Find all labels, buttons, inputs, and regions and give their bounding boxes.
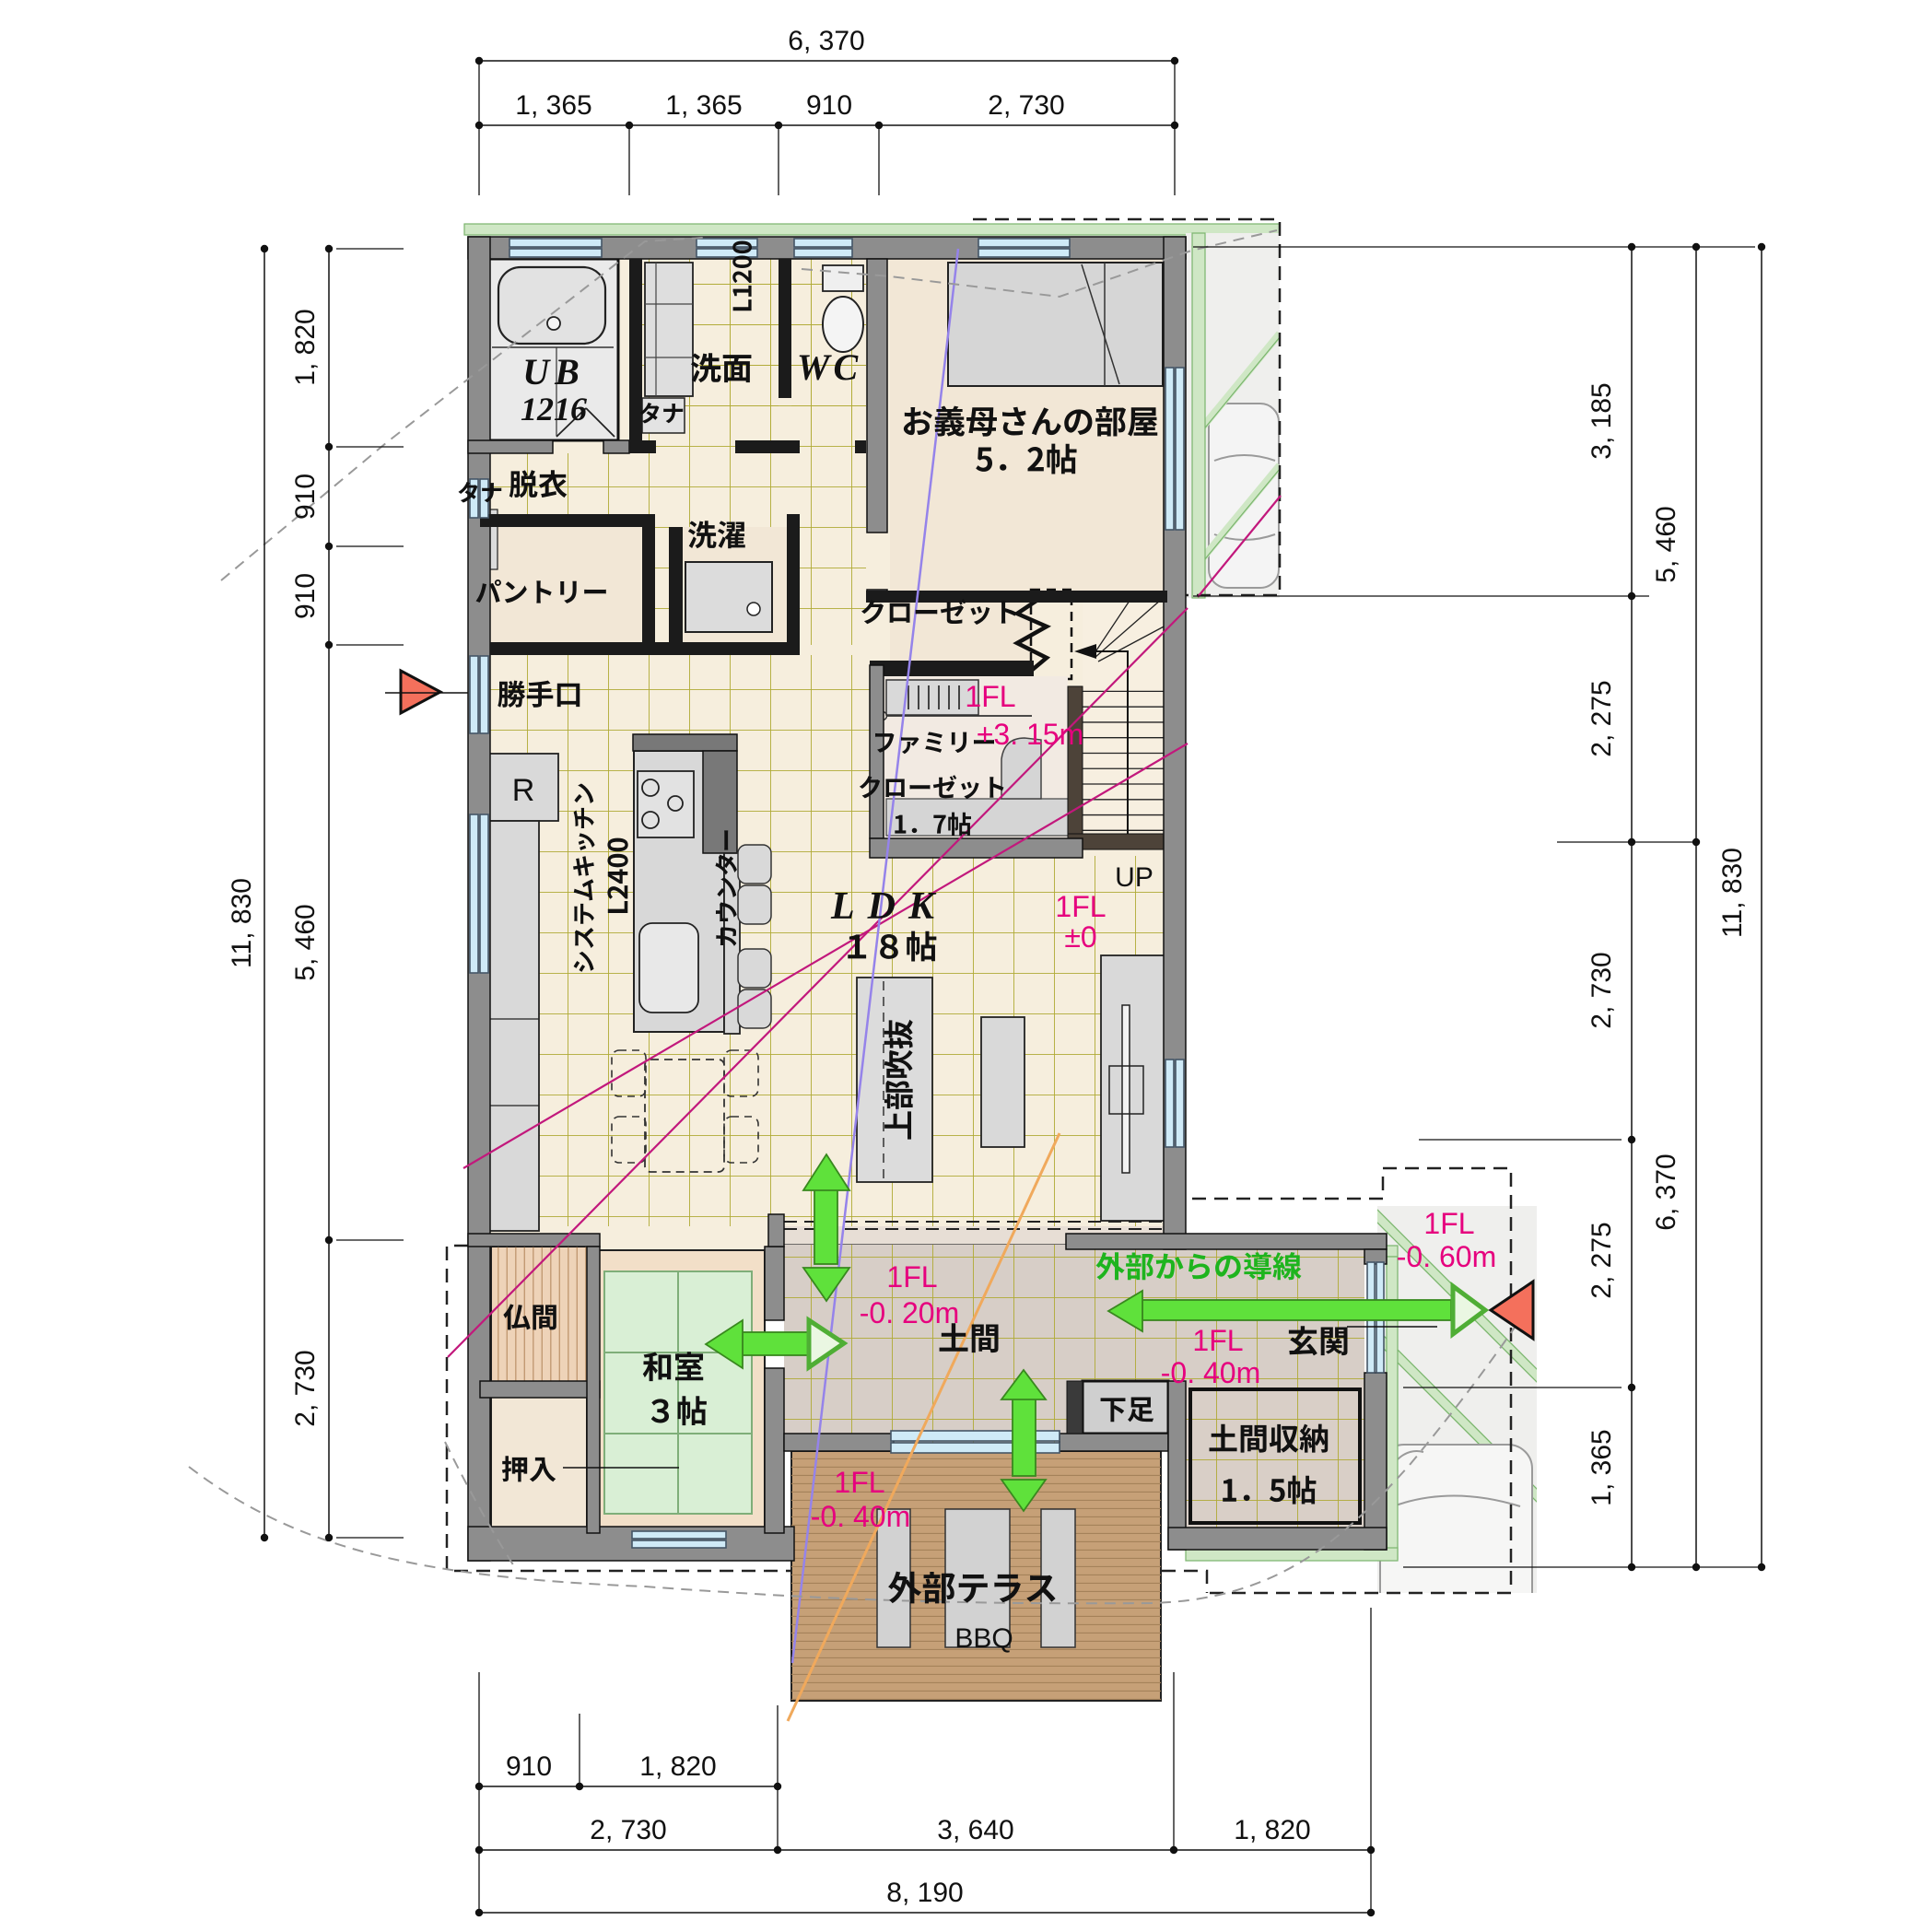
svg-text:UB: UB bbox=[522, 351, 585, 392]
svg-text:UP: UP bbox=[1115, 862, 1153, 893]
svg-text:1, 820: 1, 820 bbox=[1234, 1815, 1310, 1845]
svg-text:+3. 15m: +3. 15m bbox=[977, 718, 1084, 751]
svg-text:1, 820: 1, 820 bbox=[639, 1751, 716, 1782]
svg-text:WC: WC bbox=[797, 346, 861, 388]
svg-text:2, 275: 2, 275 bbox=[1587, 1222, 1617, 1298]
svg-text:2, 730: 2, 730 bbox=[590, 1815, 666, 1845]
svg-text:2, 730: 2, 730 bbox=[1587, 952, 1617, 1028]
svg-text:11, 830: 11, 830 bbox=[227, 878, 257, 968]
svg-text:5, 460: 5, 460 bbox=[1651, 506, 1681, 582]
svg-text:1FL: 1FL bbox=[1423, 1207, 1474, 1240]
svg-text:5, 460: 5, 460 bbox=[290, 904, 321, 980]
svg-text:2, 275: 2, 275 bbox=[1587, 680, 1617, 756]
svg-text:±0: ±0 bbox=[1064, 920, 1096, 954]
svg-text:1FL: 1FL bbox=[1192, 1324, 1243, 1357]
svg-text:-0. 60m: -0. 60m bbox=[1397, 1240, 1496, 1273]
svg-text:910: 910 bbox=[806, 90, 852, 121]
svg-text:-0. 20m: -0. 20m bbox=[860, 1296, 959, 1329]
svg-text:910: 910 bbox=[290, 474, 321, 520]
svg-text:8, 190: 8, 190 bbox=[886, 1878, 963, 1908]
svg-text:-0. 40m: -0. 40m bbox=[811, 1500, 910, 1533]
svg-text:910: 910 bbox=[506, 1751, 552, 1782]
svg-text:1FL: 1FL bbox=[886, 1260, 937, 1294]
svg-text:1FL: 1FL bbox=[1055, 890, 1106, 923]
svg-text:2, 730: 2, 730 bbox=[988, 90, 1064, 121]
svg-text:910: 910 bbox=[290, 573, 321, 619]
svg-text:6, 370: 6, 370 bbox=[788, 26, 864, 56]
svg-text:11, 830: 11, 830 bbox=[1717, 848, 1748, 938]
svg-text:6, 370: 6, 370 bbox=[1651, 1153, 1681, 1230]
svg-text:2, 730: 2, 730 bbox=[290, 1350, 321, 1426]
svg-text:1FL: 1FL bbox=[834, 1466, 884, 1499]
svg-text:3, 185: 3, 185 bbox=[1587, 382, 1617, 459]
svg-text:1, 820: 1, 820 bbox=[290, 309, 321, 385]
svg-text:1216: 1216 bbox=[521, 391, 587, 427]
svg-text:R: R bbox=[512, 773, 535, 808]
svg-text:-0. 40m: -0. 40m bbox=[1161, 1356, 1260, 1389]
svg-text:3, 640: 3, 640 bbox=[937, 1815, 1013, 1845]
svg-text:1, 365: 1, 365 bbox=[515, 90, 591, 121]
svg-text:1, 365: 1, 365 bbox=[1587, 1429, 1617, 1505]
svg-text:LDK: LDK bbox=[830, 885, 947, 928]
svg-text:BBQ: BBQ bbox=[954, 1623, 1013, 1654]
svg-text:1, 365: 1, 365 bbox=[665, 90, 742, 121]
svg-text:1FL: 1FL bbox=[965, 680, 1015, 713]
